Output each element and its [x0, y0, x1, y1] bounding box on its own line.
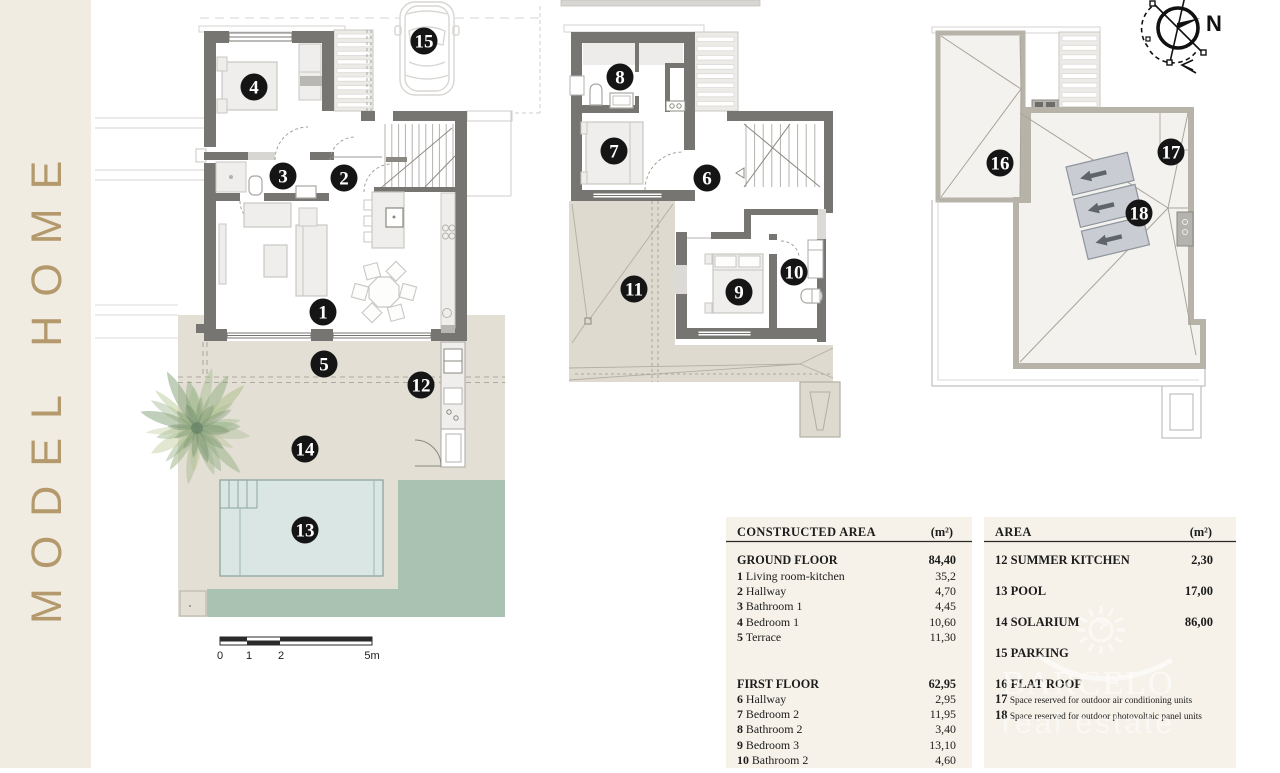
svg-text:AREA: AREA: [995, 525, 1032, 539]
svg-text:5 Terrace: 5 Terrace: [737, 630, 781, 644]
svg-text:2: 2: [278, 650, 284, 662]
svg-text:4,45: 4,45: [935, 599, 956, 613]
svg-text:3: 3: [278, 167, 288, 188]
svg-text:14: 14: [296, 440, 316, 461]
svg-text:9 Bedroom 3: 9 Bedroom 3: [737, 738, 799, 752]
svg-text:4 Bedroom 1: 4 Bedroom 1: [737, 615, 799, 629]
svg-text:18: 18: [1130, 204, 1149, 225]
svg-text:14 SOLARIUM: 14 SOLARIUM: [995, 615, 1080, 629]
svg-text:13,10: 13,10: [929, 738, 956, 752]
svg-text:1: 1: [246, 650, 252, 662]
svg-text:62,95: 62,95: [929, 677, 956, 691]
svg-text:15 PARKING: 15 PARKING: [995, 646, 1069, 660]
svg-text:4,70: 4,70: [935, 584, 956, 598]
svg-text:2 Hallway: 2 Hallway: [737, 584, 786, 598]
svg-text:84,40: 84,40: [929, 553, 956, 567]
svg-text:13 POOL: 13 POOL: [995, 584, 1046, 598]
svg-text:BARCELÓ: BARCELÓ: [1002, 664, 1175, 702]
svg-text:4: 4: [249, 78, 259, 99]
svg-text:15: 15: [415, 32, 434, 53]
svg-text:4,60: 4,60: [935, 753, 956, 767]
svg-text:5m: 5m: [364, 650, 379, 662]
svg-text:5: 5: [319, 355, 329, 376]
svg-text:8: 8: [615, 68, 625, 89]
svg-text:16: 16: [991, 154, 1010, 175]
svg-text:7 Bedroom 2: 7 Bedroom 2: [737, 707, 799, 721]
svg-text:17,00: 17,00: [1185, 584, 1213, 598]
svg-text:11: 11: [625, 280, 643, 301]
svg-text:(m²): (m²): [931, 525, 953, 539]
svg-text:1: 1: [318, 303, 328, 324]
svg-text:(m²): (m²): [1190, 525, 1212, 539]
svg-text:13: 13: [296, 521, 315, 542]
svg-text:6 Hallway: 6 Hallway: [737, 692, 786, 706]
svg-text:1 Living room-kitchen: 1 Living room-kitchen: [737, 569, 845, 583]
svg-text:10,60: 10,60: [929, 615, 956, 629]
svg-text:FIRST FLOOR: FIRST FLOOR: [737, 677, 819, 691]
svg-text:6: 6: [702, 169, 712, 190]
svg-text:86,00: 86,00: [1185, 615, 1213, 629]
svg-text:12 SUMMER KITCHEN: 12 SUMMER KITCHEN: [995, 553, 1130, 567]
svg-text:11,30: 11,30: [930, 630, 956, 644]
svg-text:MODEL HOME: MODEL HOME: [23, 142, 71, 624]
svg-text:real estate: real estate: [1002, 707, 1175, 740]
svg-text:11,95: 11,95: [930, 707, 956, 721]
svg-text:3 Bathroom 1: 3 Bathroom 1: [737, 599, 802, 613]
svg-text:9: 9: [734, 283, 744, 304]
svg-text:10: 10: [785, 263, 804, 284]
svg-text:35,2: 35,2: [935, 569, 956, 583]
svg-text:3,40: 3,40: [935, 722, 956, 736]
svg-text:17: 17: [1162, 143, 1182, 164]
svg-text:N: N: [1206, 11, 1222, 36]
svg-text:2,30: 2,30: [1191, 553, 1213, 567]
svg-text:CONSTRUCTED AREA: CONSTRUCTED AREA: [737, 525, 876, 539]
svg-text:10 Bathroom 2: 10 Bathroom 2: [737, 753, 808, 767]
svg-text:8 Bathroom 2: 8 Bathroom 2: [737, 722, 802, 736]
svg-text:7: 7: [609, 142, 619, 163]
svg-text:GROUND FLOOR: GROUND FLOOR: [737, 553, 838, 567]
svg-text:12: 12: [412, 376, 431, 397]
svg-text:2,95: 2,95: [935, 692, 956, 706]
svg-text:0: 0: [217, 650, 223, 662]
svg-text:2: 2: [339, 169, 349, 190]
